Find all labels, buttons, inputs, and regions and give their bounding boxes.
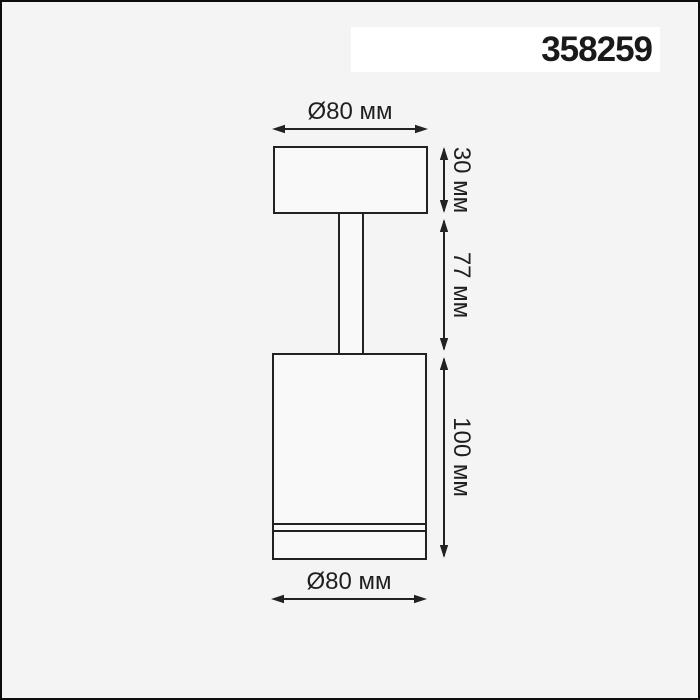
base-plate-outline (274, 147, 427, 213)
product-dimension-sheet: 358259 (0, 0, 700, 700)
arrowhead-down-icon (440, 200, 448, 213)
top-diameter-label: Ø80 мм (307, 100, 392, 124)
body-outline (273, 354, 426, 559)
arrowhead-up-icon (440, 357, 448, 370)
arrowhead-down-icon (440, 338, 448, 351)
base-height-label: 30 мм (449, 147, 473, 213)
body-height-label: 100 мм (449, 417, 473, 497)
arrowhead-up-icon (440, 147, 448, 160)
bottom-diameter-label: Ø80 мм (306, 570, 391, 594)
stem-height-label: 77 мм (449, 252, 473, 318)
arrowhead-left-icon (272, 125, 285, 133)
arrowhead-right-icon (415, 125, 428, 133)
arrowhead-up-icon (440, 219, 448, 232)
arrowhead-down-icon (440, 545, 448, 558)
stem-outline (339, 213, 363, 354)
arrowhead-left-icon (271, 595, 284, 603)
arrowhead-right-icon (414, 595, 427, 603)
